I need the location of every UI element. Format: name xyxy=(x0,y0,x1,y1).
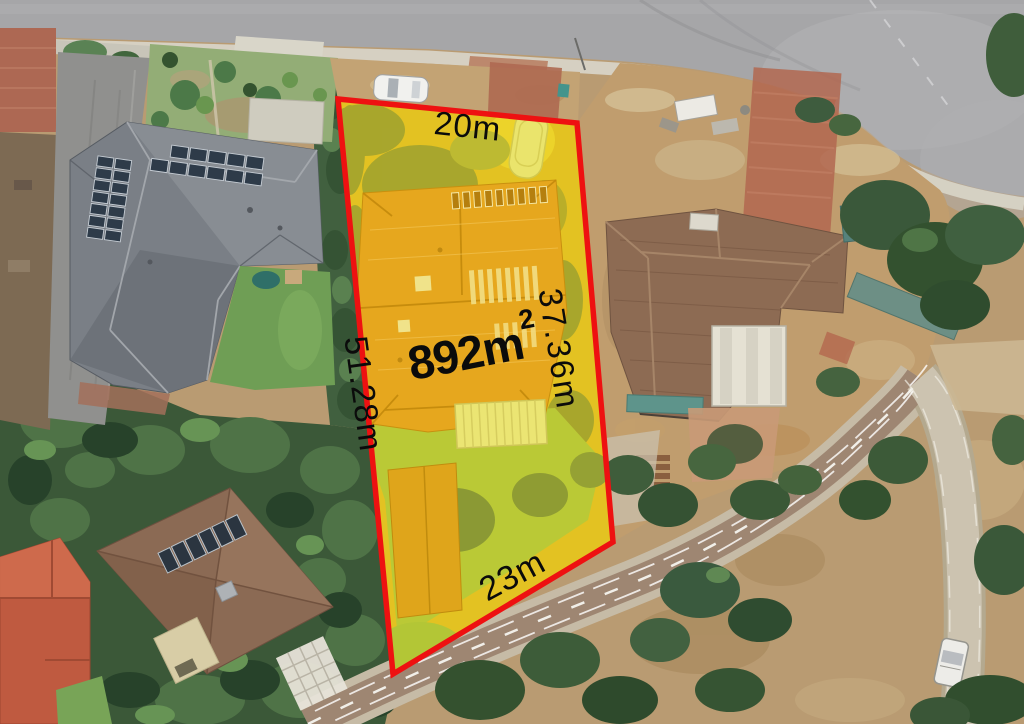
brick-driveway xyxy=(743,67,842,233)
parcel-outbuilding xyxy=(388,463,462,618)
concrete-courtyard xyxy=(248,98,324,144)
bin xyxy=(557,84,569,98)
brick-paving xyxy=(0,28,56,132)
parcel-shed xyxy=(455,400,547,449)
left-property xyxy=(0,28,338,430)
garden-shed-small xyxy=(285,270,302,284)
parked-car xyxy=(373,74,429,103)
aerial-map: 20m 37.36m 51.28m 23m 892m2 xyxy=(0,0,1024,724)
pool xyxy=(252,271,280,289)
dimension-label-top: 20m xyxy=(433,106,503,146)
